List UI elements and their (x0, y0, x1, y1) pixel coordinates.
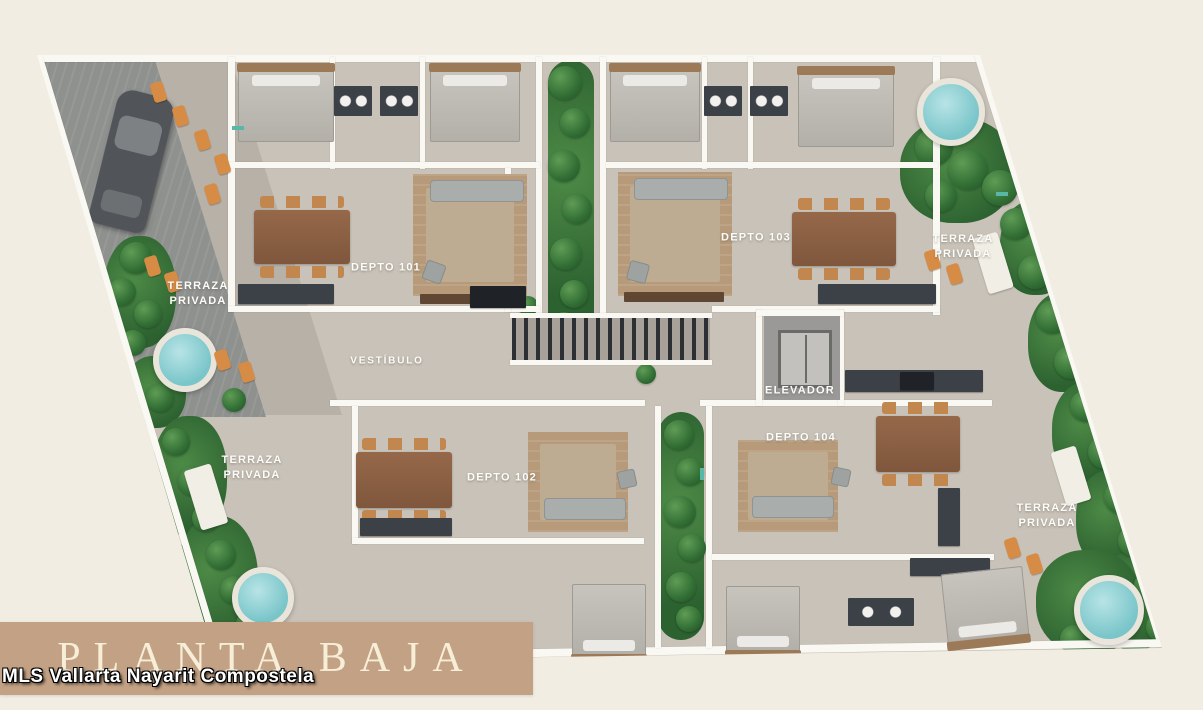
closet-accent (996, 192, 1008, 196)
bed (430, 70, 520, 142)
bathroom-vanity (334, 86, 372, 116)
wall (228, 162, 540, 168)
tree (222, 388, 246, 412)
tree (560, 108, 590, 138)
wall (655, 406, 661, 648)
wall (706, 406, 712, 648)
label-depto-102: DEPTO 102 (467, 471, 537, 486)
label-depto-103: DEPTO 103 (721, 231, 791, 246)
pool (232, 567, 294, 629)
tree (134, 300, 162, 328)
tree (162, 428, 190, 456)
pool (1074, 575, 1144, 645)
kitchen-counter (360, 518, 452, 536)
dining-table (876, 416, 960, 472)
bathroom-vanity (750, 86, 788, 116)
elevator-cab (778, 330, 832, 388)
bed (798, 73, 894, 147)
label-depto-101: DEPTO 101 (351, 261, 421, 276)
bathroom-vanity (704, 86, 742, 116)
sofa (752, 496, 834, 518)
wall (38, 55, 979, 62)
stair-rail (510, 360, 712, 365)
label-terraza-privada: TERRAZA PRIVADA (222, 453, 283, 483)
kitchen-counter (238, 284, 334, 304)
label-terraza-privada: TERRAZA PRIVADA (933, 232, 994, 262)
staircase (512, 318, 710, 360)
kitchen-counter (470, 286, 526, 308)
bathroom-vanity (848, 598, 914, 626)
wall (606, 162, 938, 168)
label-elevador: ELEVADOR (765, 384, 835, 399)
dining-table (254, 210, 350, 264)
sofa (544, 498, 626, 520)
watermark: MLS Vallarta Nayarit Compostela (2, 666, 314, 688)
wall (352, 538, 644, 544)
label-depto-104: DEPTO 104 (766, 431, 836, 446)
wall (330, 400, 645, 406)
tree (664, 420, 694, 450)
tree (206, 540, 236, 570)
bed (238, 70, 334, 142)
bed (941, 566, 1030, 644)
wall (228, 57, 235, 312)
tree (664, 496, 696, 528)
wall (600, 57, 606, 339)
tree (678, 534, 706, 562)
dining-table (792, 212, 896, 266)
kitchen-counter (818, 284, 936, 304)
armchair (830, 466, 851, 487)
tree (560, 280, 588, 308)
bed (572, 584, 646, 656)
tree (548, 66, 582, 100)
tree (550, 238, 582, 270)
wall (536, 57, 542, 339)
stove (900, 372, 934, 390)
label-terraza-privada: TERRAZA PRIVADA (1017, 501, 1078, 531)
label-terraza-privada: TERRAZA PRIVADA (168, 279, 229, 309)
bathroom-vanity (380, 86, 418, 116)
tree (562, 194, 592, 224)
kitchen-counter (938, 488, 960, 546)
pool (153, 328, 217, 392)
floor-plan: DEPTO 101 DEPTO 102 DEPTO 103 DEPTO 104 … (0, 0, 1203, 710)
tree (548, 150, 580, 182)
sofa (430, 180, 524, 202)
tree (925, 180, 957, 212)
tree (636, 364, 656, 384)
tree (666, 572, 696, 602)
tv-console (624, 292, 724, 302)
pool (917, 78, 985, 146)
tree (676, 606, 702, 632)
sofa (634, 178, 728, 200)
dining-table (356, 452, 452, 508)
label-vestibulo: VESTÍBULO (350, 354, 423, 368)
closet-accent (700, 468, 704, 480)
bed (726, 586, 800, 652)
bed (610, 70, 700, 142)
wall (420, 57, 425, 169)
armchair (616, 468, 637, 489)
wall (756, 310, 762, 406)
floor-plan-page: DEPTO 101 DEPTO 102 DEPTO 103 DEPTO 104 … (0, 0, 1203, 710)
closet-accent (232, 126, 244, 130)
